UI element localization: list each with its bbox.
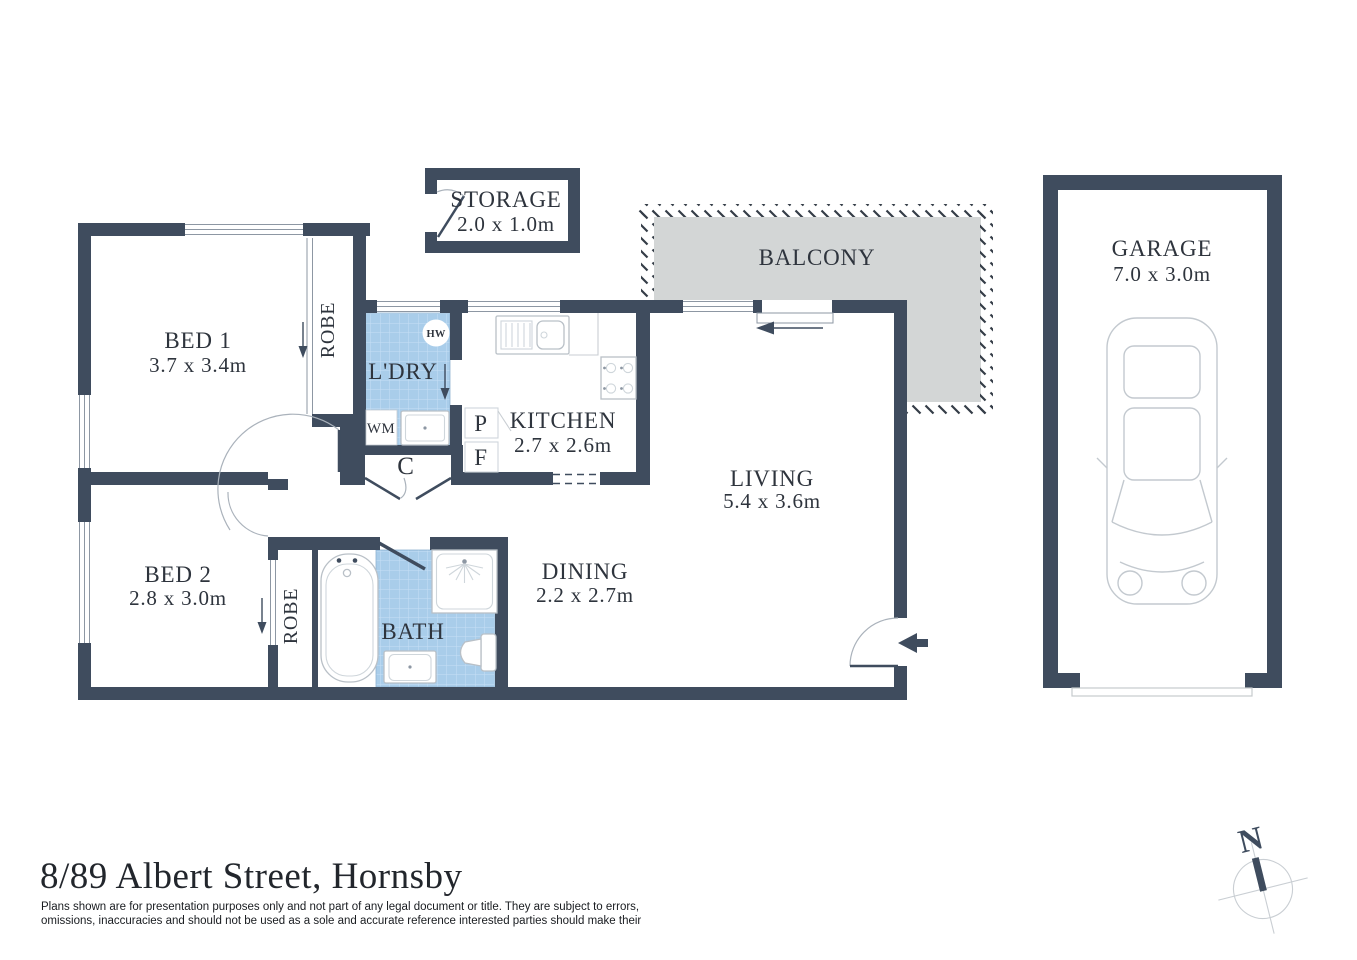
wall: [560, 300, 683, 313]
window-bed2-left: [80, 522, 90, 643]
cupboard-door-arc: [401, 478, 406, 498]
window-living: [683, 302, 753, 312]
storage-label: STORAGE: [450, 187, 561, 212]
bed2-label: BED 2: [144, 562, 211, 587]
robe2-arrow-icon: [258, 622, 267, 634]
bath-label: BATH: [381, 619, 444, 644]
living-dims: 5.4 x 3.6m: [723, 489, 821, 513]
wall: [268, 645, 278, 687]
wall: [312, 550, 318, 687]
balcony-label: BALCONY: [759, 245, 876, 270]
balcony-area: [638, 204, 993, 415]
wall: [78, 223, 185, 236]
robe1-label: ROBE: [317, 302, 339, 359]
storage-dims: 2.0 x 1.0m: [457, 212, 555, 236]
wall: [462, 472, 553, 485]
wall: [636, 313, 650, 472]
pantry-label: P: [474, 411, 488, 436]
robe2-sliding-door: [258, 560, 276, 645]
window-laundry: [377, 302, 440, 312]
bed1-label: BED 1: [164, 328, 231, 353]
window-bed1-top: [185, 225, 303, 235]
bath-spout: [343, 569, 350, 576]
compass-icon: N: [1202, 812, 1319, 945]
balcony-hatch-right: [980, 204, 993, 415]
wall: [268, 550, 278, 560]
garage-wall: [1043, 175, 1282, 190]
toilet-tank: [481, 634, 496, 671]
sliding-panel: [757, 313, 833, 323]
wall: [78, 687, 907, 700]
wall: [430, 537, 508, 550]
bed2-door-arc: [228, 492, 268, 536]
disclaimer-line2: omissions, inaccuracies and should not b…: [41, 915, 641, 927]
storage-wall: [425, 241, 580, 253]
wall: [268, 479, 288, 490]
wall: [894, 313, 907, 618]
storage-wall: [425, 168, 580, 180]
garage-wall: [1245, 673, 1267, 688]
bed1-dims: 3.7 x 3.4m: [149, 353, 247, 377]
storage-wall: [425, 180, 437, 194]
burner-knob: [620, 367, 623, 370]
fridge-label: F: [474, 445, 488, 470]
wall: [753, 300, 762, 313]
floor-plan-canvas: HW WM P F: [0, 0, 1357, 960]
laundry-label: L'DRY: [368, 359, 438, 384]
shower-head: [462, 559, 467, 564]
storage-wall: [568, 180, 580, 241]
kitchen-label: KITCHEN: [510, 408, 617, 433]
bath-tap: [353, 558, 358, 563]
wall: [303, 223, 370, 236]
cupboard-label: C: [397, 453, 414, 480]
toilet-bowl: [461, 639, 482, 666]
kitchen-dims: 2.7 x 2.6m: [514, 433, 612, 457]
robe1-arrow-icon: [299, 346, 308, 358]
laundry-tub-drain: [423, 426, 426, 429]
garage-content: [1072, 318, 1252, 696]
floor-plan-page: HW WM P F: [0, 0, 1357, 960]
wall: [268, 537, 380, 550]
garage-wall: [1058, 673, 1080, 688]
entry-door-arc: [850, 618, 898, 666]
garage-wall: [1267, 190, 1282, 688]
wall: [78, 468, 91, 522]
dining-label: DINING: [542, 559, 629, 584]
balcony-hatch-left: [641, 204, 654, 300]
burner-knob: [603, 367, 606, 370]
robe2-label: ROBE: [280, 588, 302, 645]
page-title: 8/89 Albert Street, Hornsby: [40, 856, 463, 897]
garage-label: GARAGE: [1112, 236, 1213, 261]
compass-north-label: N: [1235, 820, 1267, 861]
balcony-sliding-door: [756, 313, 833, 335]
wall: [450, 313, 462, 360]
hot-water-label: HW: [426, 329, 445, 340]
garage-wall: [1043, 190, 1058, 688]
bed2-dims: 2.8 x 3.0m: [129, 586, 227, 610]
car-icon: [1097, 318, 1227, 604]
compass-needle: [1252, 857, 1267, 892]
wall: [90, 472, 268, 485]
robe1-sliding-door: [299, 238, 313, 414]
balcony-hatch-bottom: [903, 402, 993, 415]
storage-wall: [425, 232, 437, 241]
cupboard-bifold-doors: [365, 478, 451, 499]
bath-tap: [337, 558, 342, 563]
washing-machine-label: WM: [367, 421, 395, 437]
balcony-hatch-top: [638, 204, 992, 217]
wall: [353, 236, 366, 455]
entry-arrow-icon: [898, 633, 928, 653]
counter-edge: [569, 313, 598, 355]
window-kitchen: [468, 302, 560, 312]
kitchen-bench-dashed: [553, 475, 600, 484]
wall: [340, 427, 353, 485]
wall: [78, 223, 91, 395]
living-label: LIVING: [730, 466, 814, 491]
garage-dims: 7.0 x 3.0m: [1113, 262, 1211, 286]
wall: [357, 300, 377, 313]
wall: [440, 300, 468, 313]
dining-dims: 2.2 x 2.7m: [536, 583, 634, 607]
window-bed1-left: [80, 395, 90, 468]
wall: [600, 472, 650, 485]
burner-knob: [620, 387, 623, 390]
wall: [353, 455, 365, 485]
burner-knob: [603, 387, 606, 390]
wall: [832, 300, 907, 313]
vanity-drain: [408, 665, 411, 668]
wall: [451, 455, 463, 485]
garage-door: [1072, 688, 1252, 696]
disclaimer-line1: Plans shown are for presentation purpose…: [41, 901, 639, 913]
